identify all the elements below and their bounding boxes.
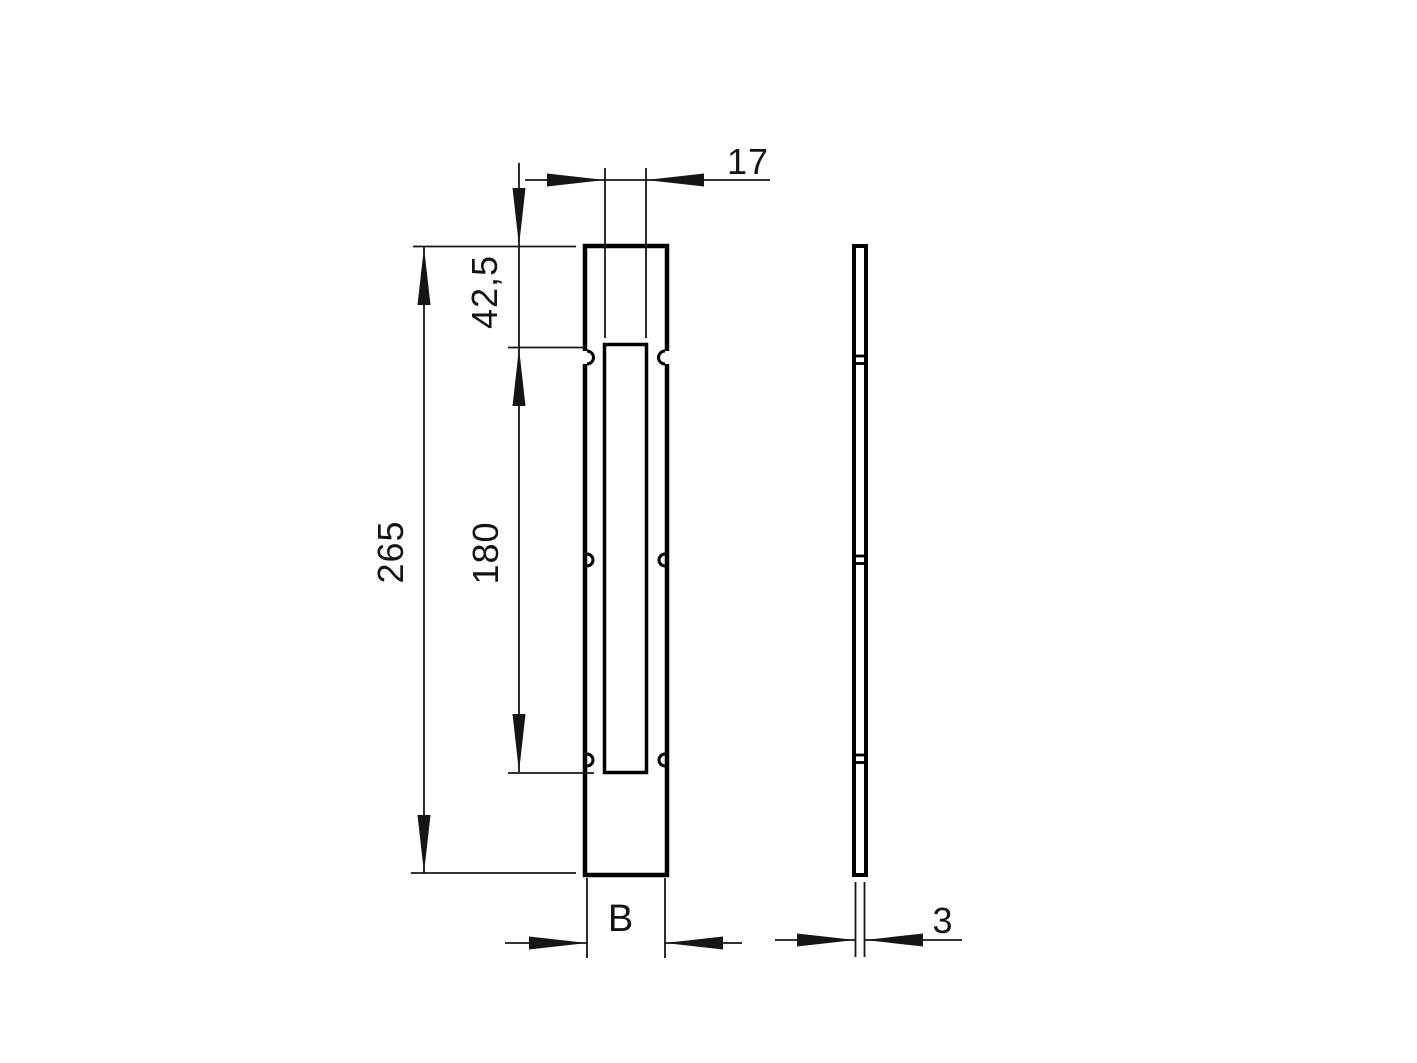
notch-top-right-gap xyxy=(663,351,671,364)
dim-label-42-5: 42,5 xyxy=(464,255,505,329)
arrowhead-B-left xyxy=(529,937,587,950)
technical-drawing: 17 42,5 180 265 B 3 xyxy=(0,0,1417,1063)
front-view xyxy=(581,246,671,875)
arrowhead-3-left xyxy=(797,934,855,947)
arrowhead-B-right xyxy=(665,937,723,950)
arrowhead-3-right xyxy=(865,934,923,947)
dimension-thickness: 3 xyxy=(775,882,962,957)
dim-label-17: 17 xyxy=(727,141,769,182)
arrowhead-265-bottom xyxy=(418,815,431,873)
arrowhead-180-top xyxy=(513,348,526,406)
arrowhead-17-left xyxy=(547,174,605,187)
arrowhead-265-top xyxy=(418,247,431,305)
arrowhead-180-bottom xyxy=(513,714,526,772)
dimension-plate-width: B xyxy=(505,878,742,958)
drawing-canvas: 17 42,5 180 265 B 3 xyxy=(0,0,1417,1063)
arrowhead-42-5-top xyxy=(513,188,526,246)
dimension-top-offset-and-slot-length: 42,5 180 xyxy=(413,163,594,773)
side-view-outline xyxy=(854,246,866,875)
notch-top-left-gap xyxy=(581,351,589,364)
slot-cutout xyxy=(605,345,647,773)
dim-label-B: B xyxy=(608,898,634,940)
dim-label-3: 3 xyxy=(932,900,953,941)
dim-label-265: 265 xyxy=(370,520,411,583)
side-view xyxy=(852,246,868,875)
arrowhead-17-right xyxy=(646,174,704,187)
dim-label-180: 180 xyxy=(465,521,506,584)
